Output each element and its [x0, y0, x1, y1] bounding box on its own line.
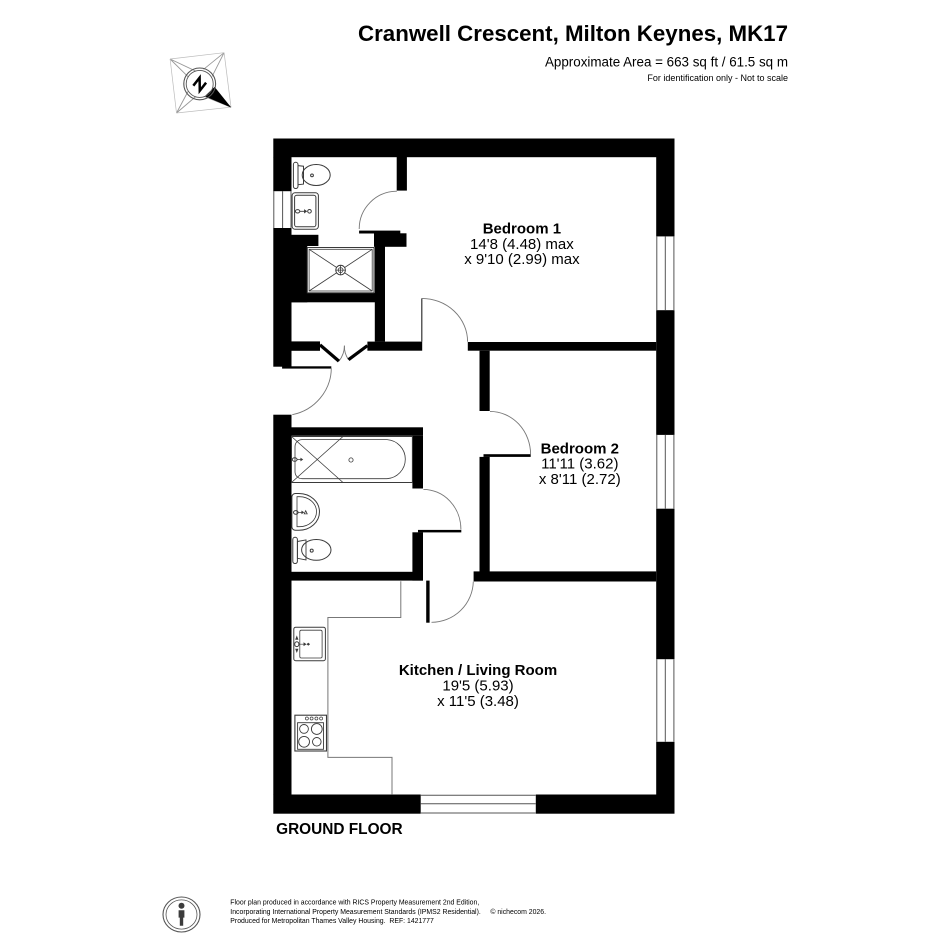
svg-text:Approximate Area = 663 sq ft /: Approximate Area = 663 sq ft / 61.5 sq m — [545, 54, 788, 69]
svg-text:Cranwell Crescent, Milton Keyn: Cranwell Crescent, Milton Keynes, MK17 — [358, 21, 788, 46]
svg-text:Produced for Metropolitan Tham: Produced for Metropolitan Thames Valley … — [230, 918, 434, 925]
svg-text:GROUND FLOOR: GROUND FLOOR — [276, 821, 403, 838]
svg-text:x 9'10 (2.99) max: x 9'10 (2.99) max — [464, 251, 580, 268]
svg-text:Kitchen / Living Room: Kitchen / Living Room — [399, 662, 557, 679]
svg-text:x 8'11 (2.72): x 8'11 (2.72) — [539, 471, 621, 488]
svg-text:Floor plan produced in accorda: Floor plan produced in accordance with R… — [230, 899, 479, 906]
svg-text:x 11'5 (3.48): x 11'5 (3.48) — [437, 693, 519, 710]
svg-text:19'5 (5.93): 19'5 (5.93) — [442, 678, 513, 695]
svg-text:Incorporating International Pr: Incorporating International Property Mea… — [230, 908, 546, 916]
svg-text:For identification only - Not: For identification only - Not to scale — [647, 73, 788, 83]
